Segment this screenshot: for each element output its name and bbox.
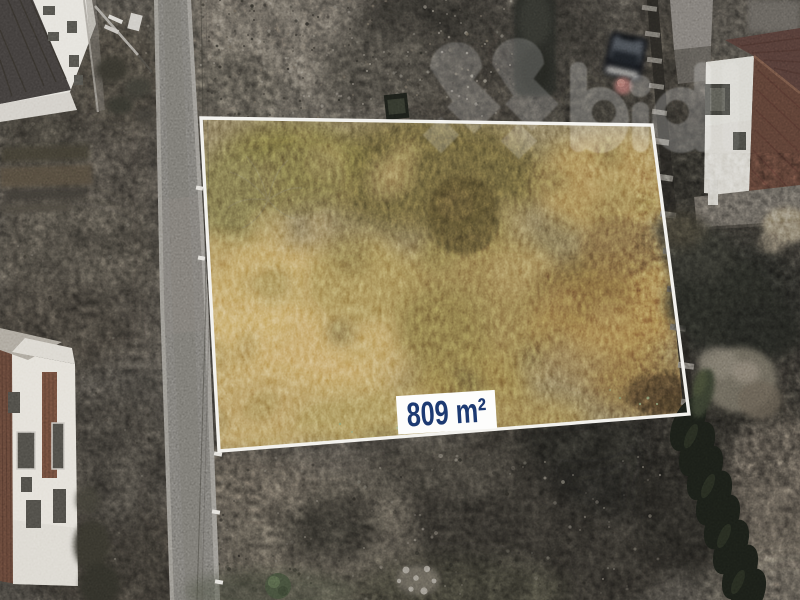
svg-text:809 m²: 809 m² xyxy=(405,391,487,434)
